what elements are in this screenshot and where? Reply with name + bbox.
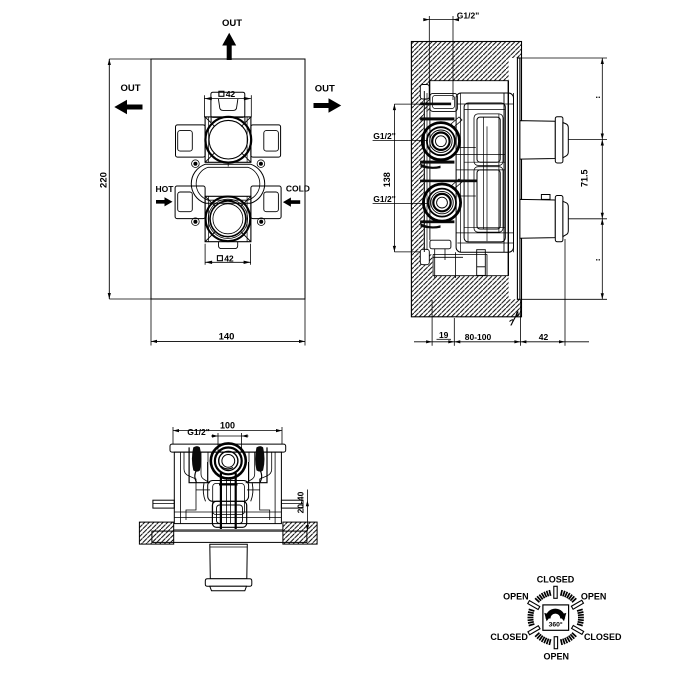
svg-text:OPEN: OPEN <box>544 652 570 662</box>
svg-text:OUT: OUT <box>222 18 242 29</box>
svg-text:..: .. <box>595 253 600 263</box>
svg-text:OUT: OUT <box>315 83 335 94</box>
svg-text:G1/2": G1/2" <box>373 131 395 141</box>
svg-text:CLOSED: CLOSED <box>490 632 528 642</box>
svg-text:OPEN: OPEN <box>503 591 529 601</box>
svg-text:42: 42 <box>539 332 549 342</box>
svg-text:100: 100 <box>220 421 235 431</box>
svg-text:220: 220 <box>99 172 110 188</box>
svg-text:42: 42 <box>226 89 236 99</box>
svg-text:OUT: OUT <box>120 83 140 94</box>
svg-text:G1/2": G1/2" <box>187 427 209 437</box>
svg-text:80-100: 80-100 <box>465 332 492 342</box>
svg-text:71.5: 71.5 <box>580 169 590 187</box>
svg-text:..: .. <box>595 90 600 100</box>
svg-text:G1/2": G1/2" <box>373 194 395 204</box>
svg-text:CLOSED: CLOSED <box>584 632 622 642</box>
svg-text:19: 19 <box>439 330 449 340</box>
svg-text:140: 140 <box>219 331 235 342</box>
svg-text:OPEN: OPEN <box>581 591 607 601</box>
svg-text:20-40: 20-40 <box>296 491 306 513</box>
svg-text:HOT: HOT <box>156 184 175 194</box>
svg-text:42: 42 <box>224 253 234 263</box>
svg-text:G1/2": G1/2" <box>457 10 479 20</box>
svg-text:138: 138 <box>382 172 392 187</box>
svg-text:360°: 360° <box>549 620 563 628</box>
svg-text:CLOSED: CLOSED <box>537 574 575 584</box>
svg-text:COLD: COLD <box>286 183 310 193</box>
